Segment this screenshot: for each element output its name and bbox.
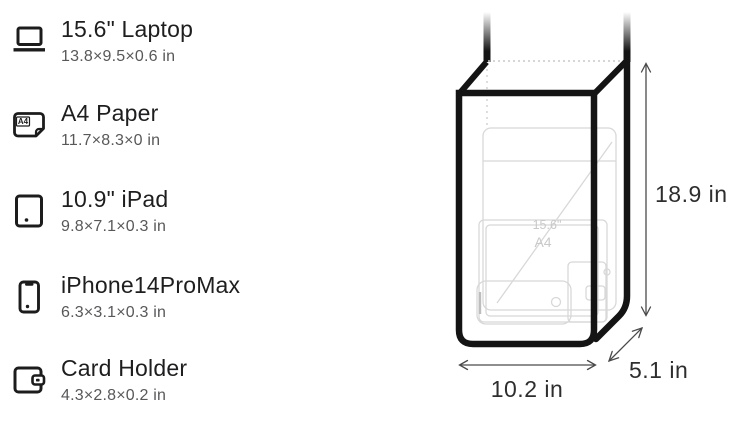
list-item-ipad: 10.9" iPad 9.8×7.1×0.3 in <box>10 186 168 236</box>
bag-top-right-edge <box>594 62 626 95</box>
item-dimensions: 13.8×9.5×0.6 in <box>61 47 193 66</box>
bag-wireframe: 15.6" A4 <box>430 0 750 426</box>
item-dimensions: 11.7×8.3×0 in <box>61 131 160 150</box>
list-item-card-holder: Card Holder 4.3×2.8×0.2 in <box>10 355 187 405</box>
item-title: Card Holder <box>61 355 187 382</box>
inside-iphone-outline <box>477 281 571 324</box>
ipad-icon <box>10 193 48 229</box>
item-dimensions: 4.3×2.8×0.2 in <box>61 386 187 405</box>
item-title: A4 Paper <box>61 100 160 127</box>
item-dimensions: 9.8×7.1×0.3 in <box>61 217 168 236</box>
inside-laptop-label: 15.6" <box>533 218 562 232</box>
list-item-iphone: iPhone14ProMax 6.3×3.1×0.3 in <box>10 272 240 322</box>
a4-icon-label: A4 <box>18 117 29 126</box>
inside-card-holder-outline <box>568 262 610 322</box>
bag-strap-left <box>484 12 491 62</box>
height-dimension-label: 18.9 in <box>655 181 728 207</box>
item-size-list: 15.6" Laptop 13.8×9.5×0.6 in A4 A4 Paper… <box>0 0 400 426</box>
list-item-a4-paper: A4 A4 Paper 11.7×8.3×0 in <box>10 100 160 150</box>
inside-a4-label: A4 <box>534 234 551 250</box>
iphone-icon <box>10 279 48 315</box>
item-dimensions: 6.3×3.1×0.3 in <box>61 303 240 322</box>
item-title: iPhone14ProMax <box>61 272 240 299</box>
width-dimension-label: 10.2 in <box>491 376 564 402</box>
laptop-icon <box>10 24 48 58</box>
width-dimension-arrow <box>460 361 596 370</box>
item-title: 15.6" Laptop <box>61 16 193 43</box>
a4-paper-icon: A4 <box>10 110 48 140</box>
bag-strap-right <box>624 12 631 62</box>
height-dimension-arrow <box>642 64 651 316</box>
item-title: 10.9" iPad <box>61 186 168 213</box>
bag-outline <box>459 61 627 344</box>
bag-right-back-edge <box>596 61 627 339</box>
wallet-icon <box>10 364 48 396</box>
bag-size-diagram: 15.6" A4 <box>430 0 750 426</box>
depth-dimension-label: 5.1 in <box>629 357 688 383</box>
list-item-laptop: 15.6" Laptop 13.8×9.5×0.6 in <box>10 16 193 66</box>
bag-top-left-edge <box>459 62 487 94</box>
